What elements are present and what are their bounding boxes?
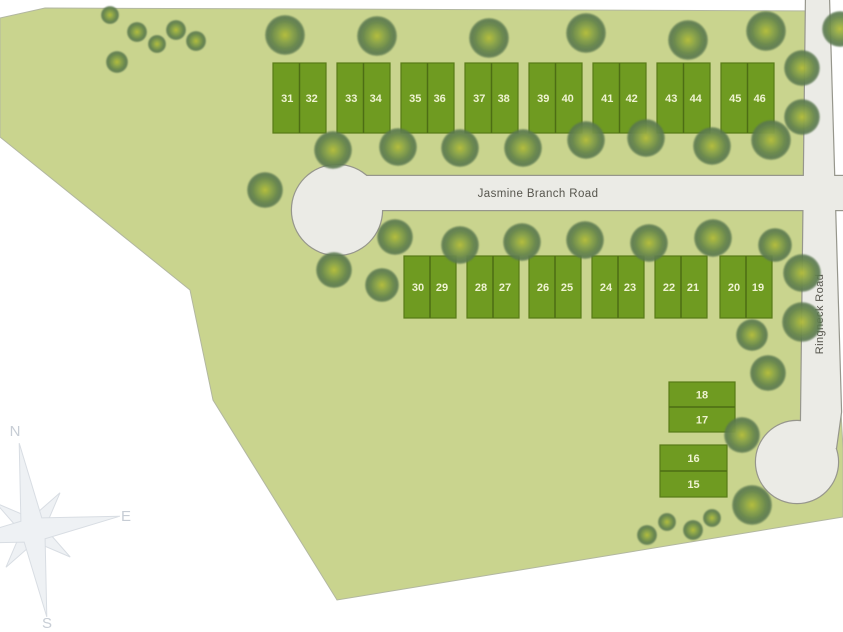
tree-icon — [566, 221, 604, 259]
site-plan-map: Jasmine Branch RoadRingneck Road31323334… — [0, 0, 843, 632]
tree-icon — [703, 509, 721, 527]
compass-label-s: S — [42, 615, 52, 632]
culdesac-ringneck — [756, 421, 838, 503]
lot-number-27: 27 — [499, 282, 511, 294]
lot-number-24: 24 — [600, 282, 613, 294]
tree-icon — [658, 513, 676, 531]
lot-number-35: 35 — [409, 93, 421, 105]
lot-number-28: 28 — [475, 282, 487, 294]
tree-icon — [746, 11, 786, 51]
lot-pair-16-15[interactable]: 1615 — [660, 445, 727, 497]
tree-icon — [693, 127, 731, 165]
lot-number-31: 31 — [281, 93, 293, 105]
lot-number-16: 16 — [687, 453, 699, 465]
lot-pair-39-40[interactable]: 3940 — [529, 63, 582, 133]
compass-label-n: N — [10, 423, 21, 440]
road-label-jasmine-branch-road: Jasmine Branch Road — [478, 188, 599, 200]
culdesac-jasmine — [292, 165, 382, 255]
lot-number-21: 21 — [687, 282, 699, 294]
lot-pair-37-38[interactable]: 3738 — [465, 63, 518, 133]
tree-icon — [736, 319, 768, 351]
lot-pair-22-21[interactable]: 2221 — [655, 256, 707, 318]
tree-icon — [314, 131, 352, 169]
tree-icon — [566, 13, 606, 53]
tree-icon — [783, 254, 821, 292]
lot-pair-43-44[interactable]: 4344 — [657, 63, 710, 133]
lot-number-36: 36 — [434, 93, 446, 105]
tree-icon — [627, 119, 665, 157]
lot-number-44: 44 — [690, 93, 703, 105]
tree-icon — [782, 302, 822, 342]
tree-icon — [784, 99, 820, 135]
lot-number-41: 41 — [601, 93, 613, 105]
tree-icon — [365, 268, 399, 302]
lot-pair-20-19[interactable]: 2019 — [720, 256, 772, 318]
tree-icon — [668, 20, 708, 60]
lot-number-30: 30 — [412, 282, 424, 294]
lot-number-45: 45 — [729, 93, 741, 105]
lot-pair-26-25[interactable]: 2625 — [529, 256, 581, 318]
lot-number-23: 23 — [624, 282, 636, 294]
lot-number-26: 26 — [537, 282, 549, 294]
tree-icon — [127, 22, 147, 42]
lot-pair-24-23[interactable]: 2423 — [592, 256, 644, 318]
lot-number-37: 37 — [473, 93, 485, 105]
tree-icon — [750, 355, 786, 391]
lot-number-29: 29 — [436, 282, 448, 294]
lot-number-43: 43 — [665, 93, 677, 105]
tree-icon — [106, 51, 128, 73]
tree-icon — [637, 525, 657, 545]
lot-pair-18-17[interactable]: 1817 — [669, 382, 735, 432]
lot-number-22: 22 — [663, 282, 675, 294]
tree-icon — [316, 252, 352, 288]
lot-pair-31-32[interactable]: 3132 — [273, 63, 326, 133]
tree-icon — [724, 417, 760, 453]
site-plan-canvas: Jasmine Branch RoadRingneck Road31323334… — [0, 0, 843, 632]
tree-icon — [469, 18, 509, 58]
lot-number-33: 33 — [345, 93, 357, 105]
tree-icon — [694, 219, 732, 257]
tree-icon — [357, 16, 397, 56]
tree-icon — [265, 15, 305, 55]
tree-icon — [504, 129, 542, 167]
lot-number-42: 42 — [626, 93, 638, 105]
tree-icon — [379, 128, 417, 166]
tree-icon — [630, 224, 668, 262]
lot-number-17: 17 — [696, 415, 708, 427]
tree-icon — [567, 121, 605, 159]
lot-number-25: 25 — [561, 282, 573, 294]
tree-icon — [441, 226, 479, 264]
lot-number-46: 46 — [754, 93, 766, 105]
lot-number-40: 40 — [562, 93, 574, 105]
lot-number-18: 18 — [696, 390, 708, 402]
tree-icon — [441, 129, 479, 167]
compass-label-e: E — [121, 508, 131, 525]
tree-icon — [758, 228, 792, 262]
tree-icon — [751, 120, 791, 160]
lot-number-15: 15 — [687, 479, 699, 491]
lot-number-32: 32 — [306, 93, 318, 105]
lot-number-34: 34 — [370, 93, 383, 105]
tree-icon — [148, 35, 166, 53]
lot-number-39: 39 — [537, 93, 549, 105]
lot-pair-30-29[interactable]: 3029 — [404, 256, 456, 318]
tree-icon — [166, 20, 186, 40]
lot-number-19: 19 — [752, 282, 764, 294]
lot-pair-33-34[interactable]: 3334 — [337, 63, 390, 133]
lot-number-38: 38 — [498, 93, 510, 105]
lot-pair-28-27[interactable]: 2827 — [467, 256, 519, 318]
lot-number-20: 20 — [728, 282, 740, 294]
tree-icon — [683, 520, 703, 540]
tree-icon — [784, 50, 820, 86]
tree-icon — [732, 485, 772, 525]
tree-icon — [503, 223, 541, 261]
tree-icon — [186, 31, 206, 51]
tree-icon — [101, 6, 119, 24]
tree-icon — [247, 172, 283, 208]
lot-pair-35-36[interactable]: 3536 — [401, 63, 454, 133]
tree-icon — [377, 219, 413, 255]
